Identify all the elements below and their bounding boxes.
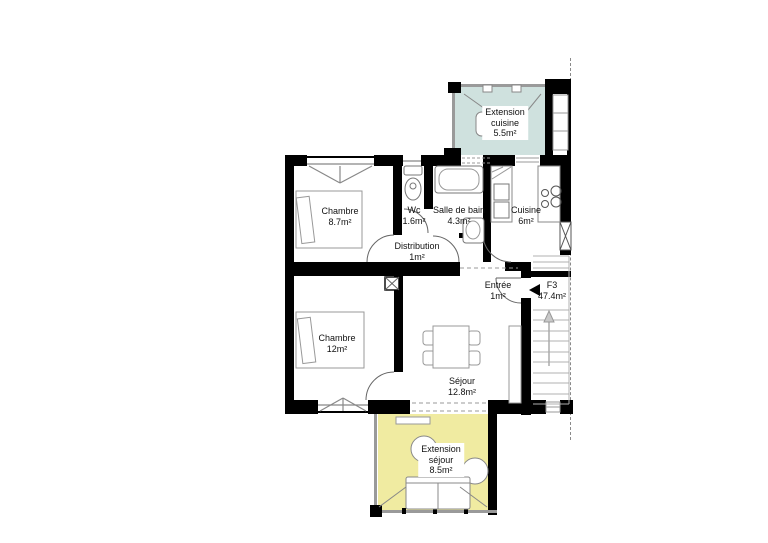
chair-icon [468, 331, 480, 345]
wall-segment [402, 508, 406, 514]
window-icon [307, 157, 421, 412]
stairs-up-arrow-icon [544, 311, 554, 322]
wall-segment [452, 84, 546, 87]
wall-segment [464, 508, 468, 514]
stairs-icon [533, 256, 569, 404]
room-label-cuisine: Cuisine 6m² [511, 205, 541, 226]
room-name: Séjour [448, 376, 476, 387]
window-icon [318, 400, 368, 414]
room-label-distribution: Distribution 1m² [394, 241, 439, 262]
wall-segment [459, 233, 483, 238]
wall-segment [448, 82, 461, 93]
door-arc-icon [366, 209, 521, 400]
room-name: Chambre [321, 206, 358, 217]
vent-window-icon [546, 400, 560, 414]
room-name: Salle de bain [433, 205, 485, 216]
room-name: séjour [421, 455, 461, 466]
wall-segment [433, 508, 437, 514]
bathtub-icon [435, 166, 483, 193]
unit-code: F3 [538, 280, 566, 291]
wall-segment [394, 276, 403, 372]
room-name: Extension [421, 444, 461, 455]
room-name: Extension [485, 107, 525, 118]
wall-segment [393, 155, 402, 235]
wall-segment [488, 400, 546, 414]
wall-segment [560, 155, 571, 222]
room-area: 4.3m² [433, 216, 485, 227]
window-icon [307, 155, 374, 166]
stove-icon [538, 166, 561, 222]
room-area: 5.5m² [485, 128, 525, 139]
dining-table-icon [423, 326, 480, 368]
room-area: 1.6m² [402, 216, 425, 227]
wall-segment [285, 155, 294, 414]
wall-segment [521, 298, 531, 415]
wall-segment [374, 414, 377, 510]
room-area: 12m² [318, 344, 355, 355]
wall-segment [531, 271, 571, 277]
toilet-icon [404, 166, 422, 200]
wall-segment [491, 155, 515, 166]
radiator-icon [509, 326, 521, 403]
room-area: 8.5m² [421, 465, 461, 476]
unit-label-f3: F3 47.4m² [538, 280, 566, 301]
wall-segment [285, 262, 460, 276]
opening-cuisine-extension [515, 155, 540, 166]
wall-segment [488, 414, 497, 515]
room-label-chambre-2: Chambre 12m² [318, 333, 355, 354]
wall-segment [567, 79, 571, 160]
kitchen-sink-icon [491, 166, 512, 222]
room-name: Entrée [485, 280, 512, 291]
room-label-wc: Wc 1.6m² [402, 205, 425, 226]
unit-area: 47.4m² [538, 291, 566, 302]
wall-segment [370, 505, 382, 517]
room-label-salle-de-bain: Salle de bain 4.3m² [433, 205, 485, 226]
chair-icon [423, 351, 435, 365]
counter-icon [553, 95, 568, 150]
room-label-sejour: Séjour 12.8m² [448, 376, 476, 397]
room-name: Chambre [318, 333, 355, 344]
room-label-extension-cuisine: Extension cuisine 5.5m² [482, 106, 528, 140]
chair-icon [468, 351, 480, 365]
wall-segment [505, 262, 531, 271]
room-area: 12.8m² [448, 387, 476, 398]
wall-segment [560, 250, 571, 255]
opening-extension-sejour [410, 400, 488, 414]
room-label-chambre-1: Chambre 8.7m² [321, 206, 358, 227]
wall-segment [285, 400, 318, 414]
floor-plan: Extension cuisine 5.5m² Chambre 8.7m² Wc… [0, 0, 768, 543]
room-name: Cuisine [511, 205, 541, 216]
room-name: Distribution [394, 241, 439, 252]
room-area: 1m² [394, 252, 439, 263]
wall-segment [424, 155, 433, 209]
wall-segment [285, 155, 307, 166]
wall-segment [368, 400, 410, 414]
room-name: Wc [402, 205, 425, 216]
room-name: cuisine [485, 118, 525, 129]
chair-icon [423, 331, 435, 345]
wall-segment [560, 400, 573, 414]
room-label-extension-sejour: Extension séjour 8.5m² [418, 443, 464, 477]
room-area: 8.7m² [321, 217, 358, 228]
room-label-entree: Entrée 1m² [485, 280, 512, 301]
room-area: 1m² [485, 291, 512, 302]
room-area: 6m² [511, 216, 541, 227]
